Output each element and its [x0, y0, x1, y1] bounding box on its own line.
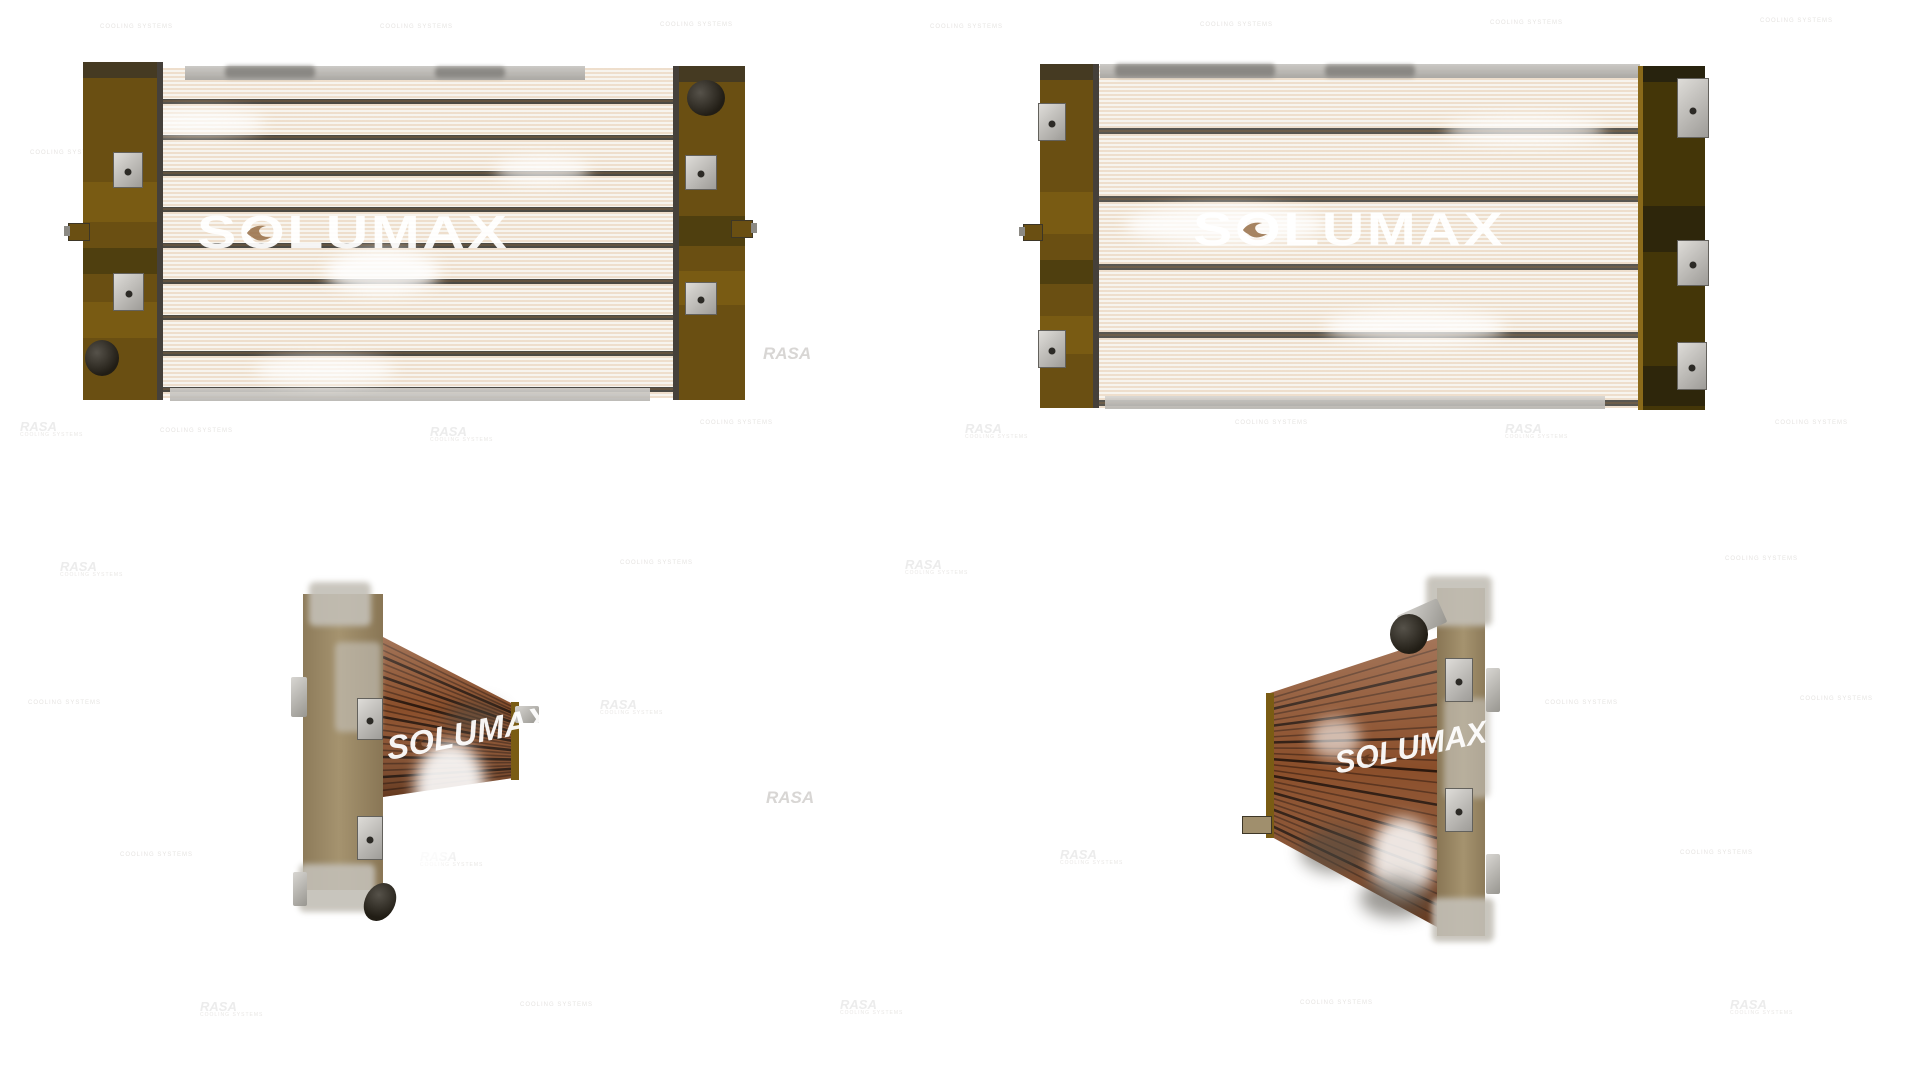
watermark-text: RASACOOLING SYSTEMS: [1060, 848, 1123, 866]
watermark-text: RASACOOLING SYSTEMS: [60, 560, 123, 578]
top-plate-shadow: [1325, 65, 1415, 77]
tank-bottom-cap: [1432, 898, 1494, 942]
filler-cap: [687, 80, 725, 116]
watermark-text: COOLING SYSTEMS: [1490, 20, 1563, 26]
watermark-text: RASACOOLING SYSTEMS: [430, 425, 493, 443]
solumax-logo-swirl: [1235, 213, 1276, 245]
tank-segment: [1040, 260, 1093, 284]
watermark-text: COOLING SYSTEMS: [1235, 420, 1308, 426]
top-plate-shadow: [225, 66, 315, 78]
watermark-text: COOLING SYSTEMS: [1760, 18, 1833, 24]
radiator-tank-left: [83, 62, 163, 400]
tank-cap: [1040, 64, 1093, 80]
watermark-text: COOLING SYSTEMS: [930, 24, 1003, 30]
mounting-bracket: [1445, 788, 1473, 832]
watermark-text: COOLING SYSTEMS: [160, 428, 233, 434]
top-plate-shadow: [435, 67, 505, 78]
highlight-blotch: [400, 817, 455, 872]
pipe-tip: [751, 223, 757, 233]
shadow-blotch: [1360, 878, 1430, 918]
watermark-text: RASACOOLING SYSTEMS: [600, 698, 663, 716]
watermark-text: RASACOOLING SYSTEMS: [200, 1000, 263, 1018]
tank-top-cap: [309, 582, 371, 626]
tank-cap: [83, 62, 157, 78]
mounting-bracket: [1445, 658, 1473, 702]
watermark-text: COOLING SYSTEMS: [1725, 556, 1798, 562]
mounting-bracket: [357, 698, 383, 740]
core-bottom-plate: [170, 388, 650, 401]
watermark-text: COOLING SYSTEMS: [1545, 700, 1618, 706]
top-plate-shadow: [1115, 64, 1275, 77]
watermark-text: COOLING SYSTEMS: [1680, 850, 1753, 856]
solumax-logo-swirl: [239, 216, 280, 248]
solumax-watermark: SOLUMAX: [1193, 202, 1505, 256]
watermark-text: COOLING SYSTEMS: [1800, 696, 1873, 702]
product-image-canvas: { "brand": { "watermark": "SOLUMAX", "ti…: [0, 0, 1920, 1080]
mounting-bracket: [113, 152, 143, 188]
pipe-tip: [1019, 227, 1025, 236]
mounting-bracket: [685, 282, 717, 315]
tank-segment: [83, 248, 157, 274]
drain-fitting: [85, 340, 119, 376]
watermark-text: COOLING SYSTEMS: [620, 560, 693, 566]
watermark-text: COOLING SYSTEMS: [1200, 22, 1273, 28]
inlet-pipe: [1242, 816, 1272, 834]
inlet-pipe: [68, 223, 90, 241]
mounting-tab: [1486, 854, 1500, 894]
watermark-text: COOLING SYSTEMS: [660, 22, 733, 28]
highlight-blotch: [495, 156, 590, 184]
watermark-text: RASACOOLING SYSTEMS: [965, 422, 1028, 440]
pipe-tip: [64, 226, 70, 236]
radiator-three-quarter-right: SOLUMAX: [1240, 578, 1498, 943]
tank-cap: [679, 66, 745, 82]
watermark-text: RASA: [766, 788, 814, 808]
watermark-text: RASACOOLING SYSTEMS: [840, 998, 903, 1016]
mounting-bracket: [685, 155, 717, 190]
watermark-text: COOLING SYSTEMS: [28, 700, 101, 706]
highlight-blotch: [1325, 310, 1505, 344]
radiator-front-view-right: SOLUMAX: [1025, 58, 1717, 410]
highlight-blotch: [1445, 116, 1605, 144]
mounting-bracket: [1038, 330, 1066, 368]
highlight-blotch: [255, 356, 395, 384]
watermark-text: RASACOOLING SYSTEMS: [1730, 998, 1793, 1016]
watermark-text: COOLING SYSTEMS: [380, 24, 453, 30]
watermark-text: COOLING SYSTEMS: [520, 1002, 593, 1008]
mounting-bracket: [113, 273, 144, 311]
radiator-three-quarter-left: SOLUMAX: [295, 582, 545, 938]
mounting-bracket: [357, 816, 383, 860]
shadow-blotch: [1300, 828, 1370, 873]
solumax-logo-swirl: [409, 731, 433, 757]
mounting-bracket: [1677, 342, 1707, 390]
mounting-bracket: [1677, 240, 1709, 286]
tank-segment: [1040, 192, 1093, 234]
mounting-tab: [293, 872, 307, 906]
inlet-pipe: [1023, 224, 1043, 241]
watermark-text: RASA: [763, 344, 811, 364]
solumax-logo-swirl: [1356, 746, 1379, 771]
solumax-watermark: SOLUMAX: [197, 205, 509, 259]
watermark-text: RASACOOLING SYSTEMS: [1505, 422, 1568, 440]
watermark-text: COOLING SYSTEMS: [120, 852, 193, 858]
mounting-tab: [291, 677, 307, 717]
tank-segment: [83, 182, 157, 222]
watermark-text: COOLING SYSTEMS: [1300, 1000, 1373, 1006]
outlet-pipe: [731, 220, 753, 238]
watermark-text: RASACOOLING SYSTEMS: [905, 558, 968, 576]
watermark-text: COOLING SYSTEMS: [100, 24, 173, 30]
mounting-bracket: [1677, 78, 1709, 138]
top-pipe-opening: [1390, 614, 1428, 654]
watermark-text: RASACOOLING SYSTEMS: [20, 420, 83, 438]
mounting-tab: [1486, 668, 1500, 712]
watermark-text: COOLING SYSTEMS: [700, 420, 773, 426]
core-bottom-plate: [1105, 396, 1605, 409]
mounting-bracket: [1038, 103, 1066, 141]
watermark-text: COOLING SYSTEMS: [1775, 420, 1848, 426]
radiator-front-view-left: SOLUMAX: [75, 58, 747, 404]
